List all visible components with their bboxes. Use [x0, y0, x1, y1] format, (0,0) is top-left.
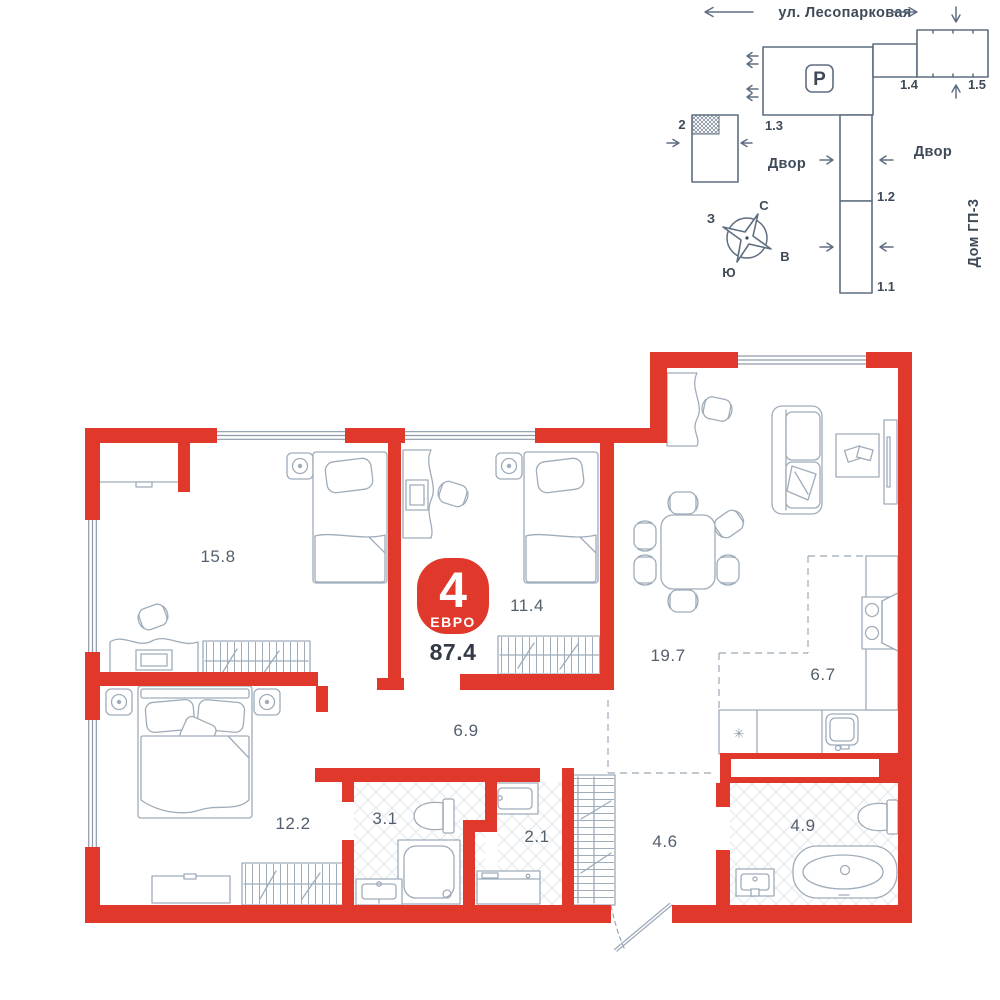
- street-label: ул. Лесопарковая: [778, 5, 911, 21]
- washbasin: [492, 783, 538, 814]
- building-label-1-4: 1.4: [900, 77, 919, 92]
- entrance-arrows-icon: [747, 53, 758, 101]
- building-label-1-5: 1.5: [968, 77, 986, 92]
- bedroom3-furniture: [106, 686, 343, 905]
- arrow-up-icon: [952, 85, 960, 98]
- chair: [135, 602, 171, 633]
- kitchen-furniture: ✳: [719, 556, 899, 754]
- window: [405, 428, 535, 443]
- single-bed: [524, 452, 598, 583]
- wardrobe: [498, 636, 608, 674]
- ceiling-light-icon: [106, 689, 132, 715]
- compass-west: З: [707, 211, 715, 226]
- building-1-5: 1.5: [917, 7, 988, 98]
- apartment-plan: ✳: [85, 352, 912, 951]
- room-area-kitchen: 6.7: [810, 665, 835, 684]
- building-label-1-2: 1.2: [877, 189, 895, 204]
- duct-niche: [731, 759, 879, 777]
- window: [217, 428, 345, 443]
- room-area-bathroom: 3.1: [372, 809, 397, 828]
- washbasin: [356, 879, 402, 905]
- parking-icon: P: [813, 69, 826, 90]
- house-gp3-label: Дом ГП-3: [966, 199, 982, 268]
- total-area: 87.4: [430, 639, 477, 665]
- ceiling-light-icon: [254, 689, 280, 715]
- compass-icon: С Ю З В: [707, 198, 790, 280]
- floor-plan-page: ул. Лесопарковая P 1.3 1.4 1.5 1.2: [0, 0, 1000, 1000]
- entrance-door: [611, 904, 672, 952]
- compass-south: Ю: [722, 265, 735, 280]
- building-1-4: 1.4: [873, 44, 919, 92]
- desk: [667, 373, 699, 446]
- apartment-badge: 4 ЕВРО 87.4: [417, 558, 489, 665]
- dining-table: [661, 515, 715, 589]
- room-area-hallway: 4.6: [652, 832, 677, 851]
- plan-canvas: ул. Лесопарковая P 1.3 1.4 1.5 1.2: [0, 0, 1000, 1000]
- building-label-1-1: 1.1: [877, 279, 895, 294]
- window: [738, 352, 866, 368]
- room-area-laundry: 2.1: [524, 827, 549, 846]
- stove: [862, 593, 899, 651]
- tv-unit: [884, 420, 897, 504]
- room-area-living: 19.7: [650, 646, 685, 665]
- room-area-corridor: 6.9: [453, 721, 478, 740]
- room-area-master-bathroom: 4.9: [790, 816, 815, 835]
- wardrobe: [242, 863, 343, 905]
- closet-handle: [136, 482, 152, 487]
- window: [85, 720, 100, 847]
- ceiling-light-icon: [287, 453, 313, 479]
- fridge-symbol: ✳: [734, 726, 745, 741]
- dining-set: [634, 492, 748, 612]
- building-1-2: 1.2: [820, 115, 895, 204]
- washing-machine: [477, 871, 540, 904]
- room-area-bedroom2: 11.4: [510, 596, 544, 615]
- building-label-2: 2: [678, 117, 685, 132]
- layout-type: ЕВРО: [430, 614, 476, 630]
- yard-label-left: Двор: [768, 156, 806, 172]
- closet: [573, 775, 615, 905]
- ceiling-light-icon: [496, 453, 522, 479]
- chair: [700, 395, 734, 423]
- compass-east: В: [780, 249, 789, 264]
- yard-label-right: Двор: [914, 144, 952, 160]
- building-2-current: 2: [667, 115, 752, 182]
- kitchen-counter: [719, 710, 899, 754]
- current-section-hatch: [692, 115, 719, 134]
- arrow-down-icon: [952, 7, 960, 22]
- hallway-furniture: [573, 775, 672, 951]
- single-bed: [313, 452, 387, 583]
- kitchen-sink: [826, 714, 858, 751]
- double-bed: [138, 686, 252, 818]
- compass-north: С: [759, 198, 769, 213]
- building-1-1: 1.1: [820, 201, 895, 294]
- sofa: [772, 406, 822, 514]
- bedroom1-furniture: [100, 452, 387, 682]
- street-arrow-left-icon: [705, 8, 753, 17]
- bathtub: [793, 846, 897, 898]
- shower: [398, 840, 460, 904]
- chair: [435, 479, 470, 509]
- rooms-count: 4: [439, 562, 467, 618]
- washbasin: [736, 869, 774, 896]
- room-area-bedroom3: 12.2: [275, 814, 310, 833]
- window: [85, 520, 100, 652]
- site-plan: ул. Лесопарковая P 1.3 1.4 1.5 1.2: [667, 5, 988, 294]
- room-area-bedroom1: 15.8: [200, 547, 235, 566]
- building-label-1-3: 1.3: [765, 118, 783, 133]
- living-furniture: [634, 373, 897, 612]
- dresser: [152, 876, 230, 903]
